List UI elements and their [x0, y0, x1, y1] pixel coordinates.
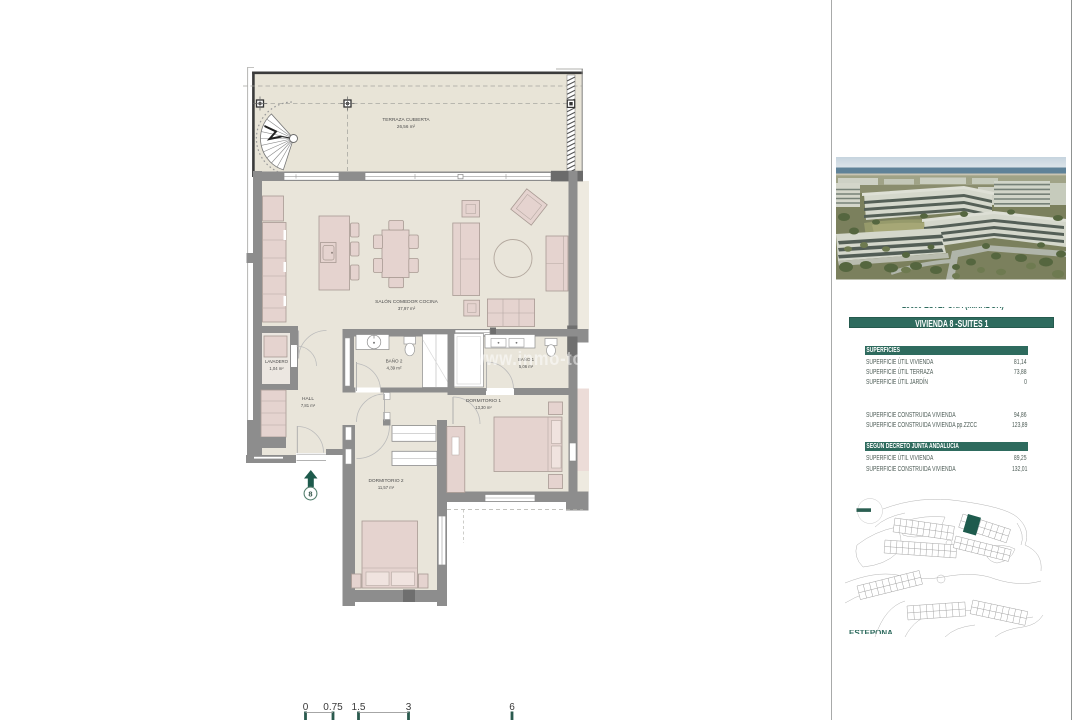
svg-text:37,97 m²: 37,97 m² — [398, 306, 416, 311]
svg-text:3: 3 — [406, 702, 412, 713]
svg-text:11,57 m²: 11,57 m² — [378, 485, 395, 490]
svg-text:8: 8 — [308, 490, 312, 499]
svg-text:TERRAZA CUBIERTA: TERRAZA CUBIERTA — [382, 117, 430, 123]
svg-text:0: 0 — [303, 702, 309, 713]
svg-text:LAVADERO: LAVADERO — [265, 359, 289, 364]
svg-text:DORMITORIO 2: DORMITORIO 2 — [368, 478, 403, 484]
svg-text:26,56 m²: 26,56 m² — [397, 124, 416, 129]
svg-text:www.inmo-toro: www.inmo-toro — [471, 348, 601, 369]
svg-text:0.75: 0.75 — [323, 702, 343, 713]
svg-text:13,30 m²: 13,30 m² — [475, 405, 492, 410]
svg-text:6: 6 — [509, 702, 515, 713]
svg-text:DORMITORIO 1: DORMITORIO 1 — [466, 398, 501, 404]
svg-text:4,39 m²: 4,39 m² — [387, 366, 402, 371]
svg-text:1.5: 1.5 — [352, 702, 366, 713]
svg-text:SALÓN COMEDOR COCINA: SALÓN COMEDOR COCINA — [375, 298, 438, 305]
svg-text:1,04 m²: 1,04 m² — [269, 366, 284, 371]
svg-text:7,81 m²: 7,81 m² — [301, 403, 316, 408]
svg-text:BAÑO 2: BAÑO 2 — [386, 358, 403, 364]
svg-text:HALL: HALL — [302, 396, 314, 402]
